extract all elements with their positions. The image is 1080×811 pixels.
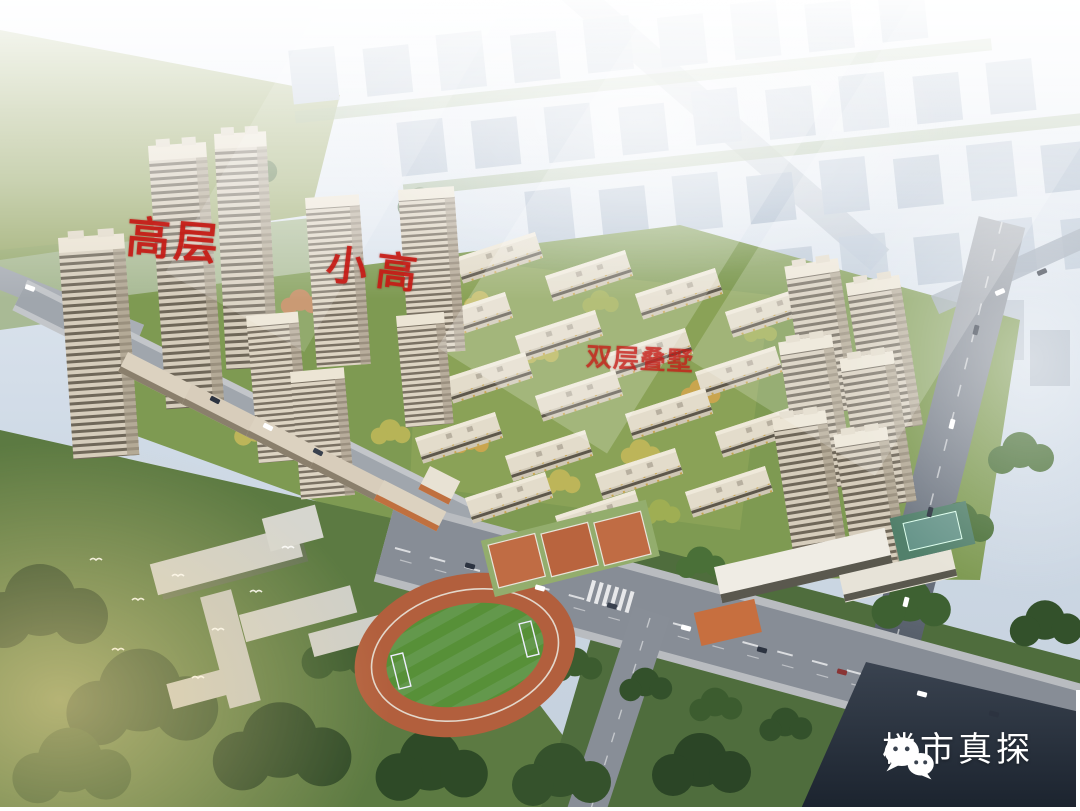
annotation-stacked-villas: 双层叠墅 xyxy=(585,343,694,375)
scene-canvas xyxy=(0,0,1080,811)
right-border xyxy=(1076,690,1080,811)
annotation-high-rise: 高层 xyxy=(124,216,223,268)
watermark: 楼市真探 xyxy=(882,733,1034,767)
wechat-icon xyxy=(882,733,936,781)
bottom-border xyxy=(0,807,1080,811)
aerial-rendering: 高层 小高 双层叠墅 楼市真探 xyxy=(0,0,1080,811)
